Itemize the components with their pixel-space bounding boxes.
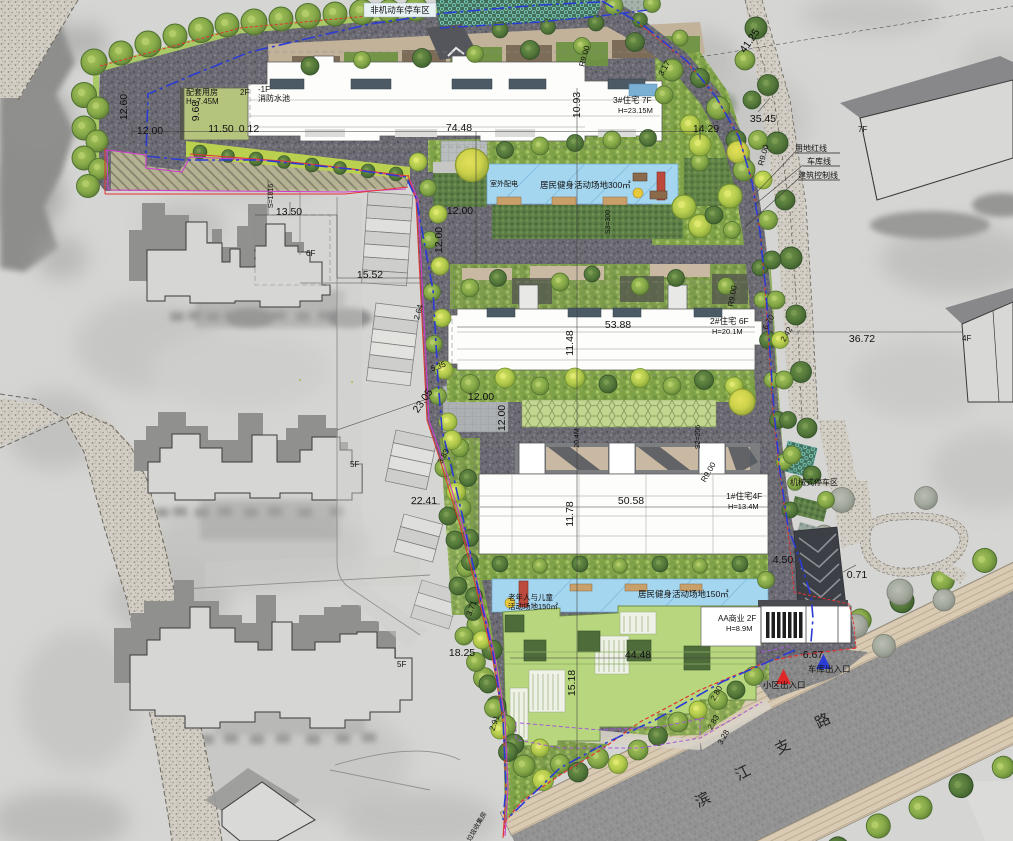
svg-text:2#住宅 6F: 2#住宅 6F: [710, 316, 749, 326]
svg-text:0.71: 0.71: [847, 569, 868, 581]
svg-text:18.25: 18.25: [449, 647, 475, 659]
svg-text:20.4M: 20.4M: [574, 428, 581, 448]
svg-text:-1F: -1F: [258, 85, 270, 94]
svg-text:12.00: 12.00: [447, 205, 473, 217]
svg-text:4.50: 4.50: [773, 554, 794, 566]
svg-text:11.50: 11.50: [208, 123, 234, 135]
svg-text:H=8.9M: H=8.9M: [726, 624, 752, 633]
svg-text:用地红线: 用地红线: [795, 143, 827, 153]
svg-text:11.78: 11.78: [564, 501, 576, 527]
svg-text:消防水池: 消防水池: [258, 93, 290, 103]
svg-text:12.00: 12.00: [433, 227, 445, 253]
svg-text:44.48: 44.48: [625, 649, 651, 661]
svg-text:S=1816: S=1816: [268, 184, 275, 208]
svg-text:12.00: 12.00: [496, 405, 508, 431]
svg-text:小区出入口: 小区出入口: [763, 680, 806, 690]
svg-text:H=7.45M: H=7.45M: [186, 97, 219, 106]
svg-text:S2=206: S2=206: [695, 425, 702, 449]
svg-text:6.67: 6.67: [803, 649, 824, 661]
svg-text:2F: 2F: [240, 88, 249, 97]
svg-text:15.18: 15.18: [566, 670, 578, 696]
svg-text:13.50: 13.50: [276, 206, 302, 218]
svg-text:S3=300: S3=300: [605, 210, 612, 234]
svg-text:H=20.1M: H=20.1M: [712, 327, 743, 336]
svg-text:53.88: 53.88: [605, 319, 631, 331]
svg-text:3#住宅 7F: 3#住宅 7F: [613, 95, 652, 105]
svg-text:36.72: 36.72: [849, 333, 875, 345]
svg-text:室外配电: 室外配电: [490, 179, 518, 188]
svg-text:配套用房: 配套用房: [186, 87, 218, 97]
svg-text:12.60: 12.60: [118, 94, 130, 120]
svg-text:22.41: 22.41: [411, 495, 437, 507]
svg-text:老年人与儿童: 老年人与儿童: [508, 592, 553, 602]
svg-text:6F: 6F: [306, 249, 315, 258]
svg-text:7F: 7F: [858, 125, 867, 134]
svg-text:建筑控制线: 建筑控制线: [798, 170, 838, 180]
svg-text:15.52: 15.52: [357, 269, 383, 281]
svg-text:1#住宅4F: 1#住宅4F: [726, 491, 762, 501]
svg-text:H=23.15M: H=23.15M: [618, 106, 653, 115]
svg-text:12.00: 12.00: [468, 391, 494, 403]
svg-text:35.45: 35.45: [750, 113, 776, 125]
svg-text:居民健身活动场地150㎡: 居民健身活动场地150㎡: [638, 589, 729, 599]
svg-text:12.00: 12.00: [137, 125, 163, 137]
svg-text:11.48: 11.48: [564, 330, 576, 356]
svg-text:非机动车停车区: 非机动车停车区: [370, 5, 430, 15]
svg-text:5F: 5F: [397, 660, 406, 669]
svg-text:10.93: 10.93: [571, 92, 583, 118]
svg-text:4F: 4F: [962, 334, 971, 343]
svg-text:居民健身活动场地300㎡: 居民健身活动场地300㎡: [540, 180, 631, 190]
svg-text:5F: 5F: [350, 460, 359, 469]
svg-text:车库线: 车库线: [807, 156, 831, 166]
svg-text:14.29: 14.29: [693, 123, 719, 135]
svg-text:活动场地150㎡: 活动场地150㎡: [508, 601, 559, 611]
svg-text:74.48: 74.48: [446, 122, 472, 134]
svg-text:H=13.4M: H=13.4M: [728, 502, 759, 511]
svg-text:车库出入口: 车库出入口: [808, 664, 851, 674]
svg-text:0.12: 0.12: [239, 123, 260, 135]
svg-text:机械式停车区: 机械式停车区: [790, 477, 838, 487]
svg-text:50.58: 50.58: [618, 495, 644, 507]
svg-text:AA商业 2F: AA商业 2F: [718, 613, 756, 623]
